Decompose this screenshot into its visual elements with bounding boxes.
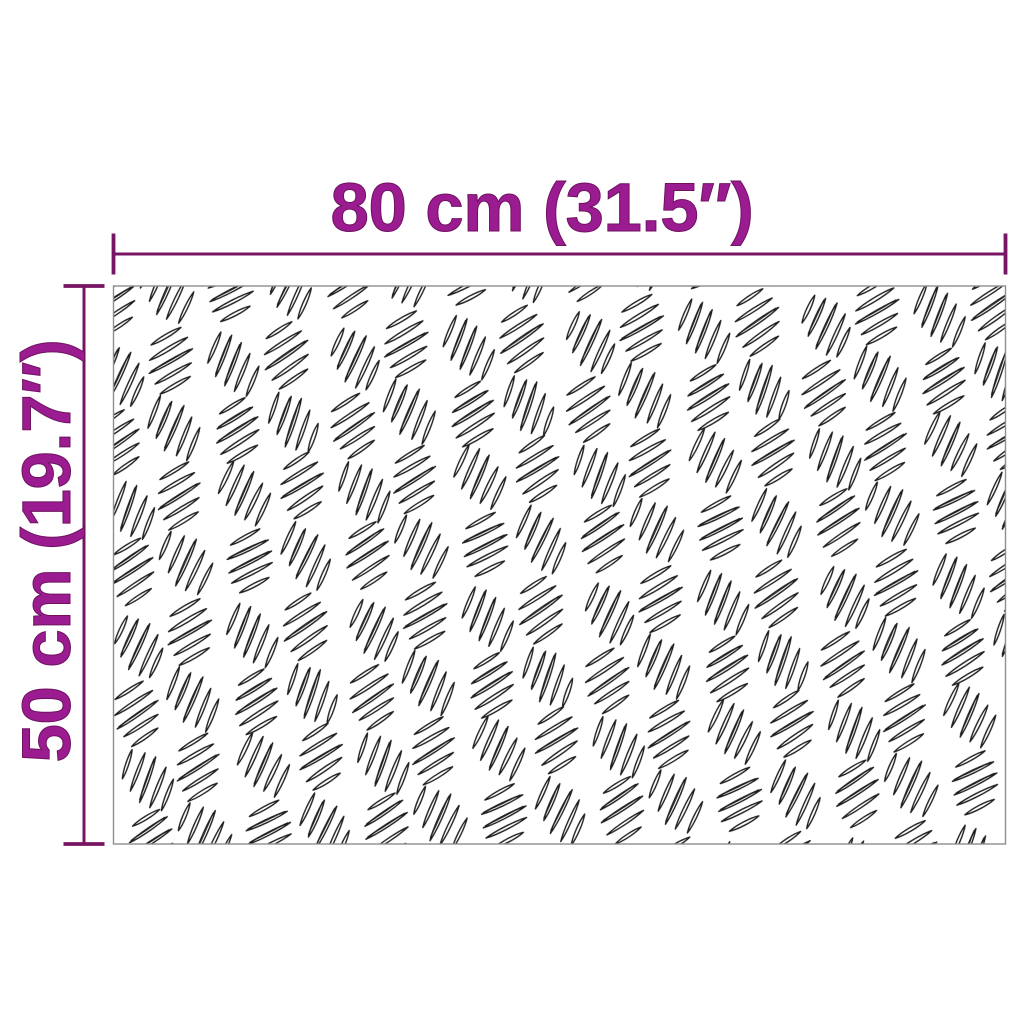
svg-text:80 cm (31.5″): 80 cm (31.5″) [331,169,754,246]
svg-text:50 cm (19.7″): 50 cm (19.7″) [8,340,85,763]
